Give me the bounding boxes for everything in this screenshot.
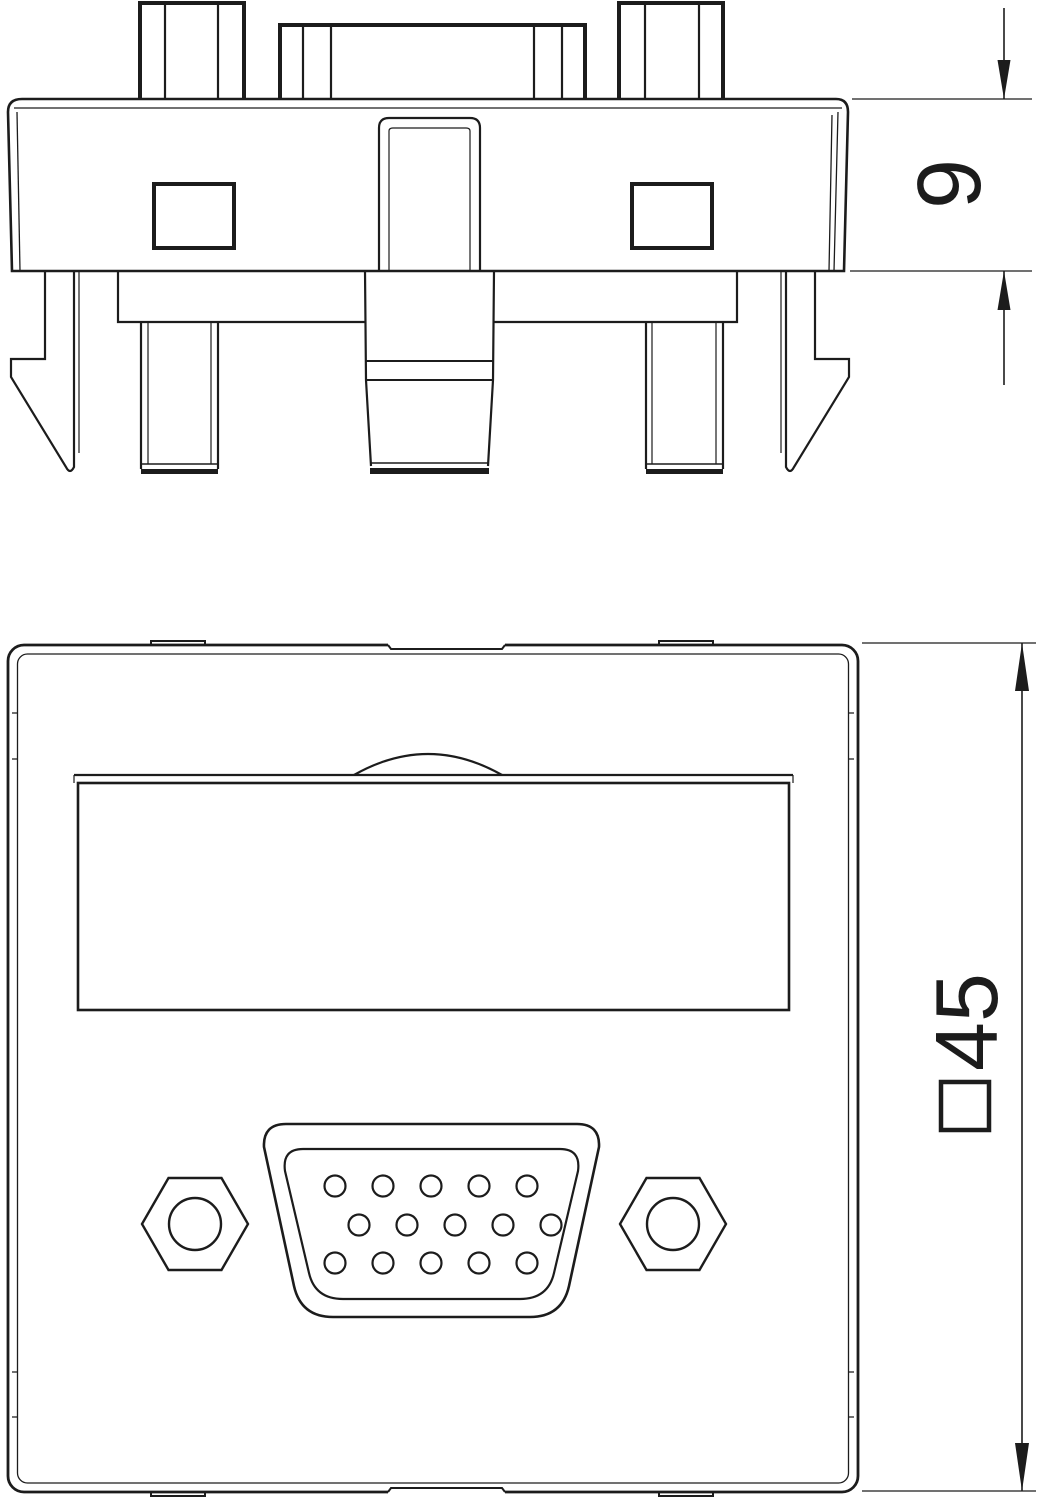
dsub-pin-hole: [541, 1215, 562, 1236]
dsub-pin-hole: [517, 1253, 538, 1274]
snap-hook-left: [11, 271, 79, 471]
dimension-face-value: 45: [917, 973, 1016, 1071]
hex-nut-left: [142, 1178, 248, 1270]
hex-nut-right: [620, 1178, 726, 1270]
dsub-pin-hole: [325, 1253, 346, 1274]
edge-ticks-right: [849, 713, 854, 1417]
rear-post-right: [619, 3, 723, 99]
rear-post-left: [140, 3, 244, 99]
dimension-depth: 9: [850, 8, 1032, 385]
cover-plate: [8, 641, 858, 1496]
dimension-face: 45: [862, 643, 1036, 1491]
body-window-right: [632, 184, 712, 248]
side-profile-view: 9: [8, 3, 1032, 472]
mounting-bar: [118, 271, 737, 322]
dsub-pin-hole: [421, 1253, 442, 1274]
square-symbol-icon: [941, 1082, 989, 1130]
dsub-pin-hole: [421, 1176, 442, 1197]
dsub-pin-hole: [469, 1176, 490, 1197]
mounting-foot-right: [646, 322, 723, 472]
dsub-pin-hole: [349, 1215, 370, 1236]
latch-tongue: [379, 118, 480, 271]
arrowhead-down-icon: [1015, 1443, 1029, 1491]
dsub-pin-hole: [445, 1215, 466, 1236]
module-body: [8, 99, 848, 271]
dsub-pin-hole: [493, 1215, 514, 1236]
dsub-inner-shell: [285, 1149, 579, 1299]
dimension-depth-value: 9: [900, 159, 1000, 209]
label-field: [74, 754, 793, 1010]
dsub-pin-hole: [469, 1253, 490, 1274]
snap-hook-right: [781, 271, 849, 471]
technical-drawing-sheet: 9: [0, 0, 1042, 1500]
mounting-foot-left: [141, 322, 218, 472]
dsub-pin-hole: [373, 1253, 394, 1274]
dsub-pin-hole: [373, 1176, 394, 1197]
vga-connector-icon: [264, 1124, 599, 1317]
thumb-grip-arc: [354, 754, 502, 775]
front-face-view: 45: [8, 641, 1036, 1496]
dsub-pin-hole: [325, 1176, 346, 1197]
dsub-pin-holes: [325, 1176, 562, 1274]
arrowhead-down-icon: [998, 60, 1011, 99]
edge-ticks-left: [12, 713, 18, 1417]
dsub-outer-shell: [264, 1124, 599, 1317]
rear-connector-shell: [280, 25, 585, 99]
arrowhead-up-icon: [1015, 643, 1029, 691]
center-latch-foot: [365, 271, 494, 471]
body-window-left: [154, 184, 234, 248]
dsub-pin-hole: [397, 1215, 418, 1236]
dsub-pin-hole: [517, 1176, 538, 1197]
arrowhead-up-icon: [998, 271, 1011, 310]
